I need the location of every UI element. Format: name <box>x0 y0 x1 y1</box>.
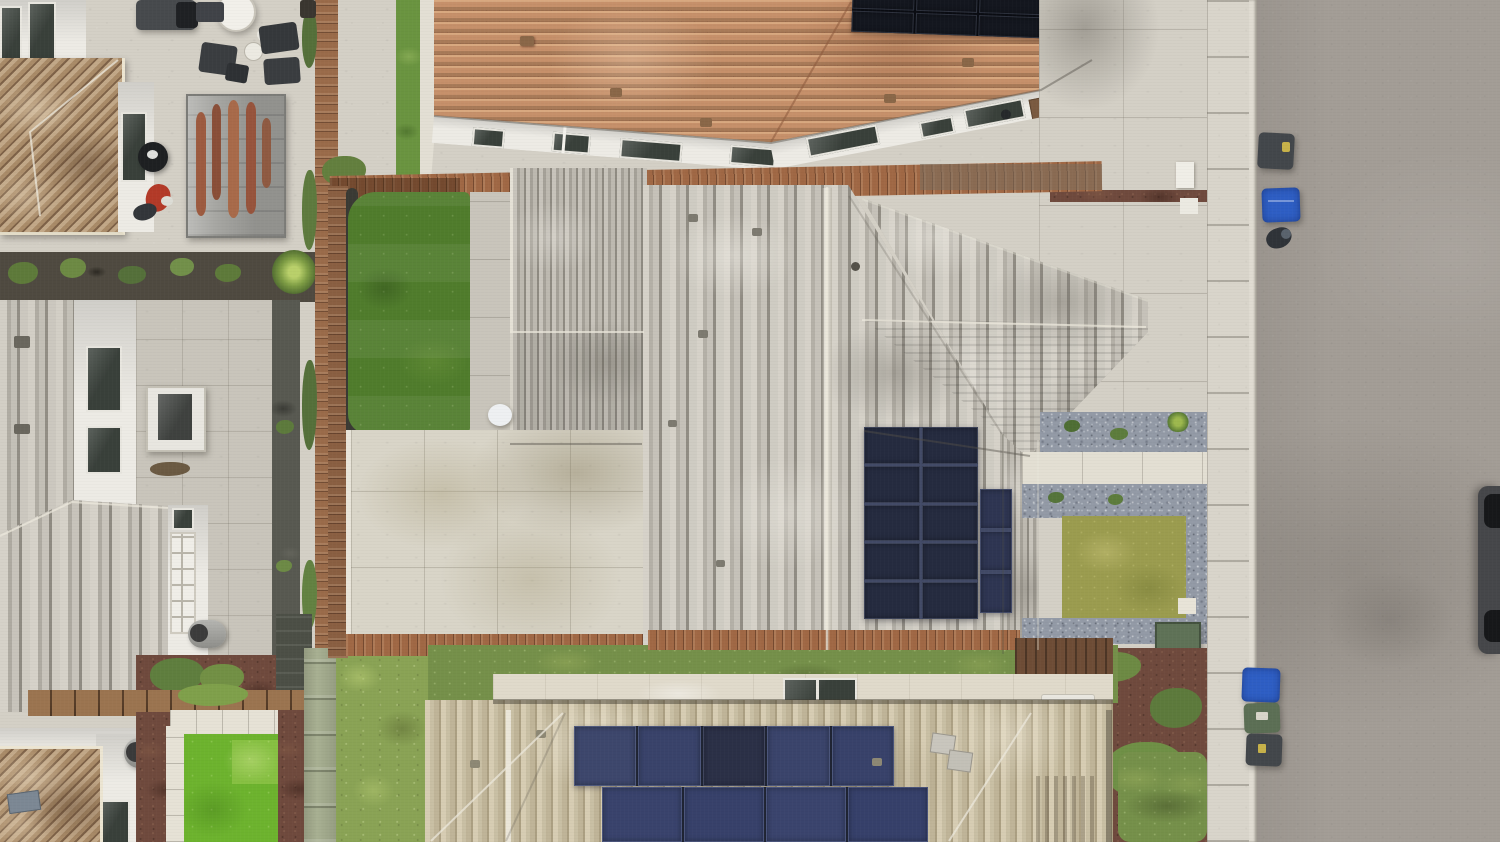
roof-pipe-vent <box>752 228 762 236</box>
solar-panel <box>767 726 829 786</box>
surfboard <box>228 100 239 218</box>
terracotta-roof-vent <box>884 94 896 103</box>
solar-panel <box>638 726 700 786</box>
white-helmet <box>161 196 173 206</box>
white-object-on-walk <box>488 404 512 426</box>
surfboard <box>196 112 206 216</box>
roof-pipe-vent <box>688 214 698 222</box>
solar-panel <box>684 787 764 842</box>
car-tire-front <box>1484 494 1500 528</box>
solar-panel <box>979 0 1041 15</box>
solar-panel <box>980 489 1012 529</box>
garage-lower-slope-shade <box>510 332 644 444</box>
wall-vent-cap <box>190 624 208 642</box>
front-grass-patch <box>1118 752 1207 842</box>
solar-panel <box>915 13 977 36</box>
trash-bin-blue-top <box>1261 187 1300 222</box>
bottom-left-window <box>100 800 130 842</box>
solar-panel <box>916 0 978 13</box>
bottom-house-solar-row-1 <box>574 726 894 786</box>
roof-pipe-vent <box>716 560 725 567</box>
top-left-window-2 <box>28 2 56 64</box>
solar-panel <box>864 427 920 464</box>
small-palm <box>1166 412 1190 432</box>
french-door <box>170 532 196 634</box>
patio-chair-2 <box>258 21 300 54</box>
bin-lid-line <box>1268 200 1294 202</box>
solar-panel <box>574 726 636 786</box>
left-house-window <box>86 346 122 412</box>
terracotta-roof-vent <box>610 88 622 97</box>
bottom-roof-section-edge <box>506 710 511 842</box>
trash-bin-blue-bottom <box>1241 667 1280 702</box>
front-white-walkway <box>1022 452 1207 484</box>
solar-panel <box>864 466 920 503</box>
bottom-long-fence <box>648 630 1020 650</box>
solar-panel <box>848 787 928 842</box>
sidewalk <box>1207 0 1249 842</box>
rear-window <box>729 145 776 168</box>
solar-panel <box>703 726 765 786</box>
palm-plant <box>272 250 316 294</box>
solar-panel <box>922 427 978 464</box>
surfboard <box>212 104 221 200</box>
solar-panel <box>978 15 1040 38</box>
paver-border-vertical <box>166 726 186 842</box>
bottom-roof-top-eave <box>493 699 1113 704</box>
solar-panel <box>602 787 682 842</box>
aerial-photo-stage <box>0 0 1500 842</box>
solar-panel <box>922 543 978 580</box>
turf-side-walk <box>470 192 510 434</box>
trash-bin-label <box>1282 142 1290 152</box>
solar-panel <box>922 505 978 542</box>
bottom-house-solar-row-2 <box>602 787 928 842</box>
rear-fence-gray-section <box>920 164 1102 190</box>
green-bin-label <box>1256 712 1268 720</box>
solar-panel <box>864 543 920 580</box>
rear-window <box>552 132 591 155</box>
roof-vent <box>14 424 30 434</box>
patio-side-table <box>225 62 250 84</box>
terracotta-roof-vent <box>520 36 534 46</box>
roof-pipe-vent <box>470 760 480 768</box>
solar-panel <box>766 787 846 842</box>
center-house-solar-column <box>980 489 1012 613</box>
roof-vent <box>14 336 30 348</box>
solar-panel <box>852 0 914 11</box>
car-tire-rear <box>1484 610 1500 642</box>
bbq-grill-hood <box>176 2 198 28</box>
white-paver-small <box>1178 598 1196 614</box>
solar-panel <box>864 505 920 542</box>
patio-chair-3 <box>263 57 301 85</box>
solar-panel <box>864 582 920 619</box>
terracotta-roof-vent <box>700 118 712 127</box>
solar-panel <box>832 726 894 786</box>
person-at-curb-head <box>1281 229 1291 239</box>
main-roof-ridge-cap <box>822 188 832 652</box>
top-left-house-roof <box>0 58 125 235</box>
driveway-shadow <box>1039 0 1169 140</box>
roof-drip-stains <box>1036 776 1094 842</box>
center-concrete-patio <box>346 430 651 644</box>
solar-panel <box>922 582 978 619</box>
front-lawn <box>1062 516 1186 620</box>
roof-pipe-vent <box>536 730 546 738</box>
solar-panel <box>922 466 978 503</box>
bottom-roof-right-eave <box>1106 710 1112 842</box>
dark-side-path <box>272 300 300 662</box>
center-house-solar-array <box>864 427 978 619</box>
solar-panel <box>980 573 1012 613</box>
rear-lawn-strip <box>396 0 422 188</box>
planter-pot <box>300 0 316 18</box>
solar-panel <box>980 531 1012 571</box>
turf-light-patch <box>232 740 280 784</box>
rooftop-vent-box-2 <box>947 749 974 772</box>
left-house-lower-transom <box>172 508 194 530</box>
center-backyard-turf <box>348 192 470 434</box>
street-stain <box>1300 520 1480 720</box>
terracotta-roof-vent <box>962 58 974 67</box>
roof-pipe-vent <box>872 758 882 766</box>
mailbox-white <box>1176 162 1194 188</box>
ac-unit-coil <box>158 394 192 440</box>
mossy-lawn <box>336 636 430 842</box>
left-house-upper-wall <box>74 300 136 532</box>
surfboard <box>262 118 271 188</box>
left-house-window-2 <box>86 426 122 474</box>
roof-pipe-vent <box>698 330 708 338</box>
left-house-upper-roof <box>0 300 78 532</box>
kettle-grill-lid-highlight <box>147 150 158 159</box>
roof-pipe-round <box>851 262 860 271</box>
solar-panel <box>851 11 913 34</box>
sage-green-fence <box>304 648 338 842</box>
patio-chair-4 <box>196 2 224 22</box>
roof-pipe-vent <box>668 420 677 427</box>
center-left-fence <box>328 186 348 658</box>
white-paver-block <box>1180 198 1198 214</box>
dark-bin-label <box>1258 744 1266 753</box>
surfboard <box>246 102 256 214</box>
